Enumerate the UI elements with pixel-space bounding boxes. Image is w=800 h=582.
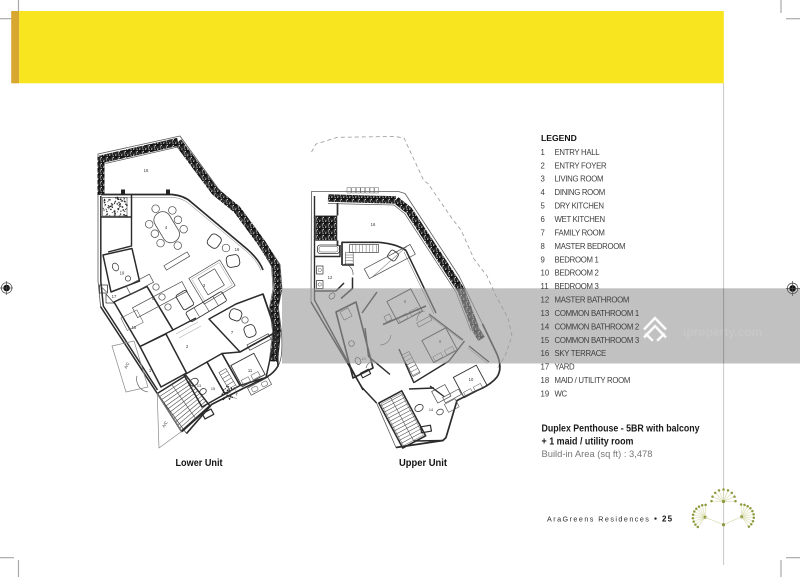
svg-text:16: 16 bbox=[371, 222, 376, 227]
svg-text:ENTRY HALL: ENTRY HALL bbox=[555, 148, 601, 157]
svg-text:18: 18 bbox=[132, 325, 137, 330]
svg-text:25: 25 bbox=[662, 515, 673, 524]
svg-text:14: 14 bbox=[429, 408, 433, 412]
svg-text:BEDROOM 3: BEDROOM 3 bbox=[555, 282, 599, 291]
svg-text:COMMON BATHROOM 1: COMMON BATHROOM 1 bbox=[555, 309, 639, 318]
svg-text:Lower Unit: Lower Unit bbox=[176, 457, 223, 469]
svg-text:19: 19 bbox=[120, 271, 125, 276]
svg-text:BEDROOM 1: BEDROOM 1 bbox=[555, 255, 599, 264]
svg-text:15: 15 bbox=[541, 336, 550, 345]
svg-text:16: 16 bbox=[541, 349, 550, 358]
svg-text:ENTRY FOYER: ENTRY FOYER bbox=[555, 161, 608, 170]
svg-text:17: 17 bbox=[112, 294, 117, 299]
svg-text:14: 14 bbox=[541, 322, 550, 331]
svg-text:MAID / UTILITY ROOM: MAID / UTILITY ROOM bbox=[555, 376, 631, 385]
svg-text:16: 16 bbox=[235, 247, 240, 252]
svg-text:A/C: A/C bbox=[161, 420, 169, 428]
svg-text:LEGEND: LEGEND bbox=[541, 133, 577, 143]
svg-text:1: 1 bbox=[541, 148, 545, 157]
svg-text:5: 5 bbox=[541, 202, 546, 211]
svg-text:COMMON BATHROOM 2: COMMON BATHROOM 2 bbox=[555, 322, 639, 331]
svg-text:2: 2 bbox=[186, 344, 189, 349]
svg-text:7: 7 bbox=[231, 330, 234, 335]
svg-text:9: 9 bbox=[541, 255, 545, 264]
svg-text:8: 8 bbox=[541, 242, 545, 251]
svg-text:17: 17 bbox=[541, 363, 550, 372]
svg-text:6: 6 bbox=[111, 203, 114, 208]
svg-text:4: 4 bbox=[165, 225, 168, 230]
svg-text:DINING ROOM: DINING ROOM bbox=[555, 188, 605, 197]
svg-text:A/C: A/C bbox=[123, 361, 131, 369]
svg-text:18: 18 bbox=[541, 376, 550, 385]
svg-text:AraGreens Residences: AraGreens Residences bbox=[547, 515, 650, 524]
svg-text:3: 3 bbox=[203, 283, 206, 288]
svg-text:WC: WC bbox=[555, 390, 568, 399]
svg-text:Upper Unit: Upper Unit bbox=[399, 457, 447, 469]
svg-text:12: 12 bbox=[541, 296, 550, 305]
svg-text:13: 13 bbox=[197, 384, 201, 388]
svg-text:WET KITCHEN: WET KITCHEN bbox=[555, 215, 605, 224]
svg-text:LIVING ROOM: LIVING ROOM bbox=[555, 175, 604, 184]
svg-text:10: 10 bbox=[541, 269, 550, 278]
svg-text:MASTER BEDROOM: MASTER BEDROOM bbox=[555, 242, 626, 251]
svg-text:6: 6 bbox=[541, 215, 545, 224]
svg-text:7: 7 bbox=[541, 228, 545, 237]
svg-text:DRY KITCHEN: DRY KITCHEN bbox=[555, 202, 604, 211]
svg-text:Build-in Area (sq ft) : 3,478: Build-in Area (sq ft) : 3,478 bbox=[542, 449, 653, 460]
svg-text:15: 15 bbox=[211, 387, 215, 391]
svg-text:12: 12 bbox=[328, 275, 333, 280]
svg-text:13: 13 bbox=[541, 309, 550, 318]
svg-text:11: 11 bbox=[248, 368, 253, 373]
svg-text:iproperty.com: iproperty.com bbox=[683, 325, 762, 339]
svg-text:MASTER BATHROOM: MASTER BATHROOM bbox=[555, 296, 630, 305]
svg-text:10: 10 bbox=[469, 377, 474, 382]
svg-text:3: 3 bbox=[541, 175, 545, 184]
svg-text:YARD: YARD bbox=[555, 363, 576, 372]
svg-text:19: 19 bbox=[541, 390, 550, 399]
svg-text:16: 16 bbox=[144, 168, 149, 173]
svg-text:+ 1 maid / utility room: + 1 maid / utility room bbox=[542, 436, 634, 447]
svg-text:FAMILY ROOM: FAMILY ROOM bbox=[555, 228, 605, 237]
svg-text:Duplex Penthouse - 5BR with ba: Duplex Penthouse - 5BR with balcony bbox=[542, 424, 700, 435]
svg-text:4: 4 bbox=[541, 188, 546, 197]
svg-text:11: 11 bbox=[541, 282, 549, 291]
svg-text:2: 2 bbox=[541, 161, 545, 170]
svg-text:SKY TERRACE: SKY TERRACE bbox=[555, 349, 607, 358]
svg-text:BEDROOM 2: BEDROOM 2 bbox=[555, 269, 599, 278]
svg-text:COMMON BATHROOM 3: COMMON BATHROOM 3 bbox=[555, 336, 639, 345]
